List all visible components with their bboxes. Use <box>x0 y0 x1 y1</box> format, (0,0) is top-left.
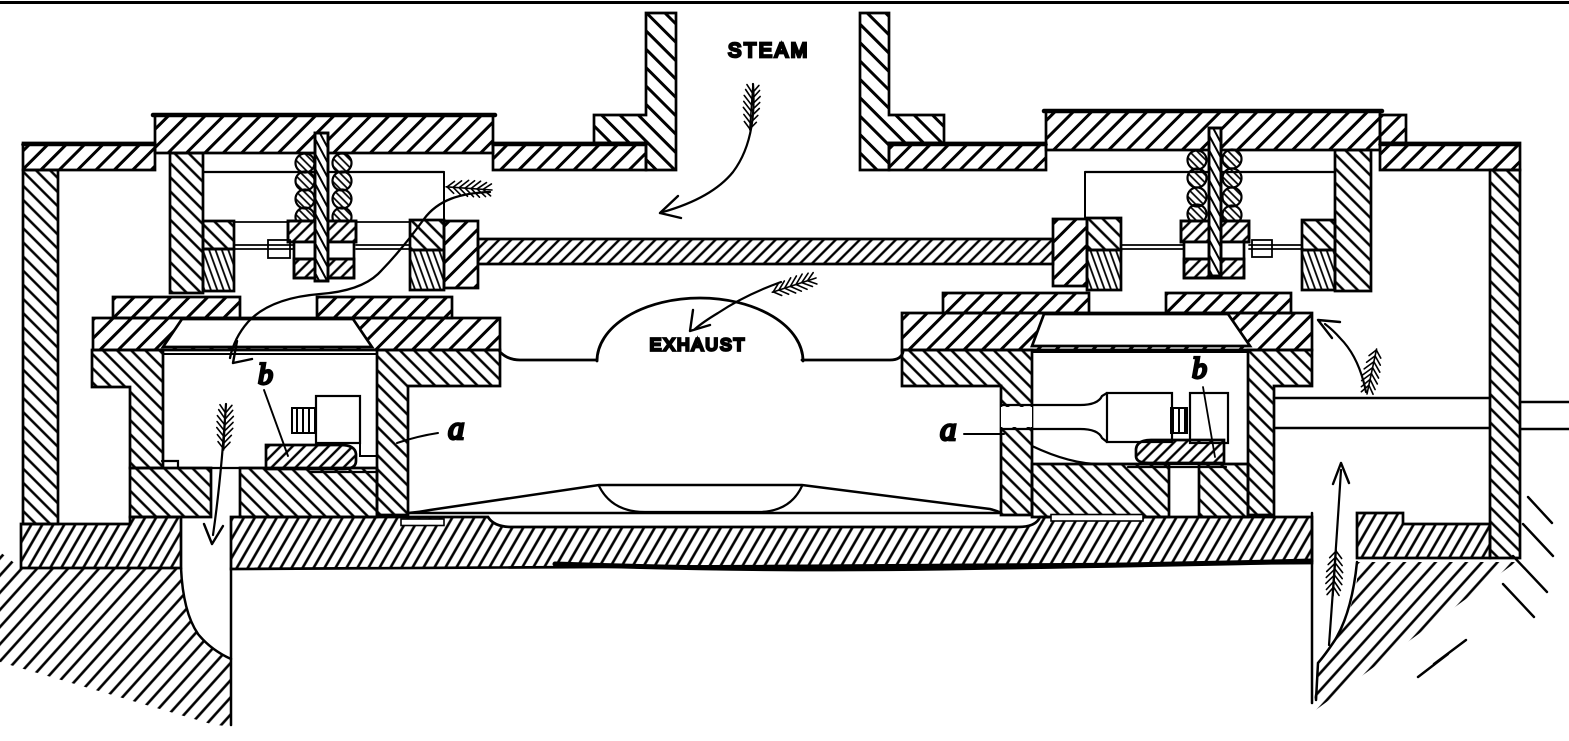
svg-text:STEAM: STEAM <box>728 40 810 62</box>
svg-text:b: b <box>1192 352 1207 385</box>
svg-text:a: a <box>940 412 957 448</box>
svg-text:EXHAUST: EXHAUST <box>650 335 747 355</box>
svg-text:b: b <box>258 358 273 391</box>
svg-text:a: a <box>448 411 465 447</box>
